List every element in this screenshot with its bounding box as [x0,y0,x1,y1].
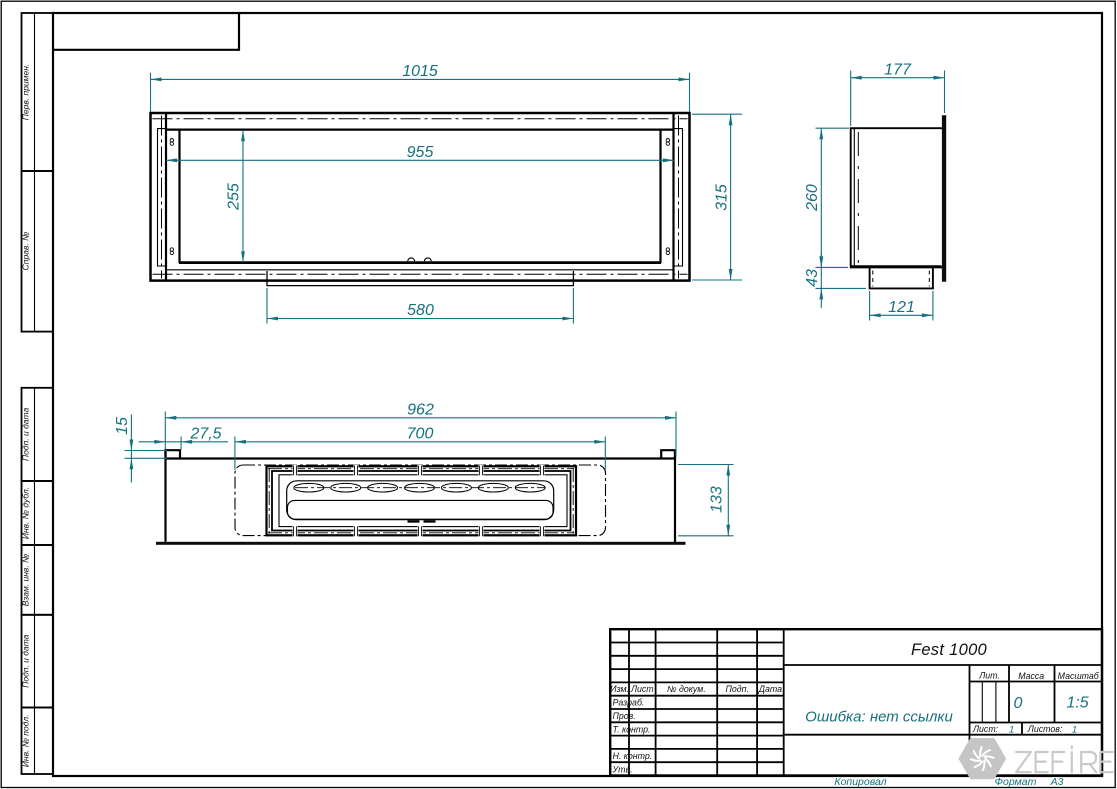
svg-text:955: 955 [407,144,434,161]
svg-text:Инв. № дубл.: Инв. № дубл. [21,487,31,539]
svg-text:Утв.: Утв. [612,764,633,774]
svg-text:Н. контр.: Н. контр. [613,751,653,761]
svg-text:1015: 1015 [402,63,438,80]
svg-text:Т. контр.: Т. контр. [613,724,651,734]
svg-text:1: 1 [1009,724,1014,735]
svg-text:133: 133 [709,486,726,513]
svg-text:177: 177 [884,61,912,78]
svg-text:Дата: Дата [758,684,782,694]
svg-text:№ докум.: № докум. [667,684,706,694]
svg-text:255: 255 [226,183,243,211]
svg-text:580: 580 [407,302,434,319]
svg-text:Копировал: Копировал [834,776,886,788]
svg-text:Масса: Масса [1018,671,1044,681]
svg-text:Изм.: Изм. [610,684,629,694]
svg-text:260: 260 [804,184,821,212]
svg-text:Масштаб: Масштаб [1058,671,1100,681]
svg-text:27,5: 27,5 [189,425,221,442]
svg-text:Подп.: Подп. [725,684,748,694]
svg-text:Формат: Формат [995,776,1037,788]
svg-text:43: 43 [804,269,821,287]
svg-text:121: 121 [888,299,915,316]
svg-text:Справ. №: Справ. № [21,232,31,271]
svg-text:Подп. и дата: Подп. и дата [21,408,31,461]
svg-text:0: 0 [1014,695,1023,712]
svg-text:Лист: Лист [630,684,654,694]
svg-text:Ошибка: нет ссылки: Ошибка: нет ссылки [805,709,953,726]
svg-text:Листов:: Листов: [1027,724,1063,734]
svg-text:Fest 1000: Fest 1000 [911,641,988,659]
svg-text:Взам. инв. №: Взам. инв. № [21,554,31,607]
svg-text:Перв. примен.: Перв. примен. [21,64,31,121]
svg-text:Разраб.: Разраб. [613,698,645,708]
svg-text:315: 315 [714,184,731,211]
svg-text:Подп. и дата: Подп. и дата [21,634,31,687]
svg-text:А3: А3 [1050,776,1064,788]
svg-text:962: 962 [407,401,434,418]
svg-text:Лист:: Лист: [972,724,999,734]
svg-text:Пров.: Пров. [613,711,636,721]
svg-text:700: 700 [407,425,434,442]
svg-text:Инв. № подл.: Инв. № подл. [21,714,31,767]
svg-text:15: 15 [114,417,131,435]
svg-text:Лит.: Лит. [978,671,1000,681]
svg-text:1:5: 1:5 [1066,695,1088,712]
svg-text:1: 1 [1072,724,1077,735]
